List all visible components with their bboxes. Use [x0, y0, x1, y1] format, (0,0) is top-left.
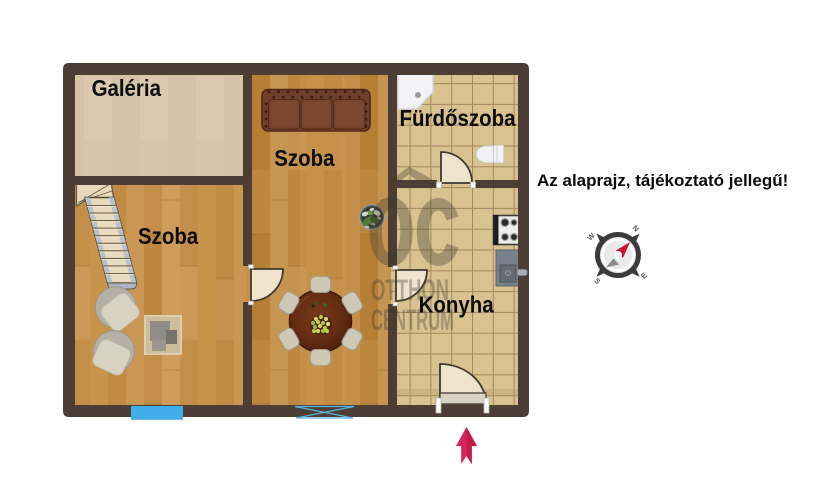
svg-text:Galéria: Galéria	[92, 75, 162, 101]
svg-text:Szoba: Szoba	[138, 223, 199, 249]
svg-text:Az alaprajz, tájékoztató jelle: Az alaprajz, tájékoztató jellegű!	[537, 171, 788, 190]
svg-text:Szoba: Szoba	[274, 145, 335, 171]
svg-text:Fürdőszoba: Fürdőszoba	[400, 105, 517, 131]
svg-text:Konyha: Konyha	[419, 291, 495, 317]
